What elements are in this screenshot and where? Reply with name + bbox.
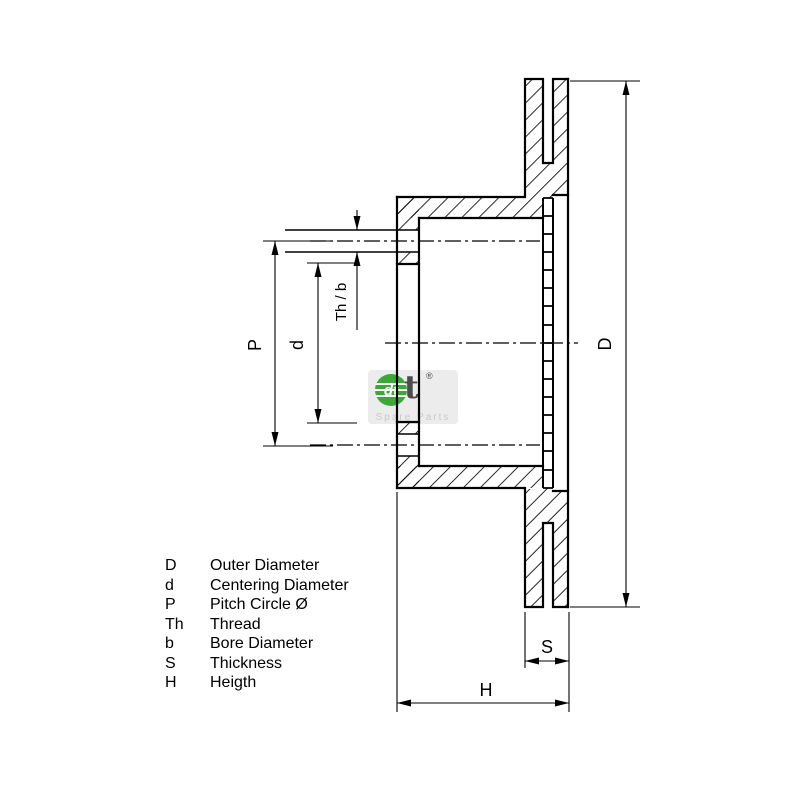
label-th-b: Th / b [333,283,350,321]
legend-symbol: H [165,673,210,693]
legend-row: D Outer Diameter [165,556,349,576]
legend-symbol: d [165,576,210,596]
legend-row: d Centering Diameter [165,576,349,596]
legend-label: Bore Diameter [210,634,313,654]
legend-row: P Pitch Circle Ø [165,595,349,615]
label-H: H [480,680,493,700]
label-d: d [287,340,307,350]
legend-label: Centering Diameter [210,576,349,596]
legend-row: H Heigth [165,673,349,693]
legend-label: Thread [210,615,261,635]
label-P: P [245,339,265,351]
legend-label: Outer Diameter [210,556,319,576]
brake-disc-technical-drawing: dt t ® Spare Parts [0,0,800,800]
label-D: D [595,338,615,351]
legend-label: Pitch Circle Ø [210,595,308,615]
legend-symbol: S [165,654,210,674]
legend-label: Heigth [210,673,256,693]
center-lines [310,241,578,445]
legend: D Outer Diameter d Centering Diameter P … [165,556,349,693]
legend-row: b Bore Diameter [165,634,349,654]
legend-symbol: P [165,595,210,615]
legend-row: Th Thread [165,615,349,635]
legend-row: S Thickness [165,654,349,674]
cross-section-drawing: D P d Th / b [0,0,800,800]
legend-symbol: Th [165,615,210,635]
legend-label: Thickness [210,654,282,674]
legend-symbol: b [165,634,210,654]
label-S: S [541,637,553,657]
legend-symbol: D [165,556,210,576]
